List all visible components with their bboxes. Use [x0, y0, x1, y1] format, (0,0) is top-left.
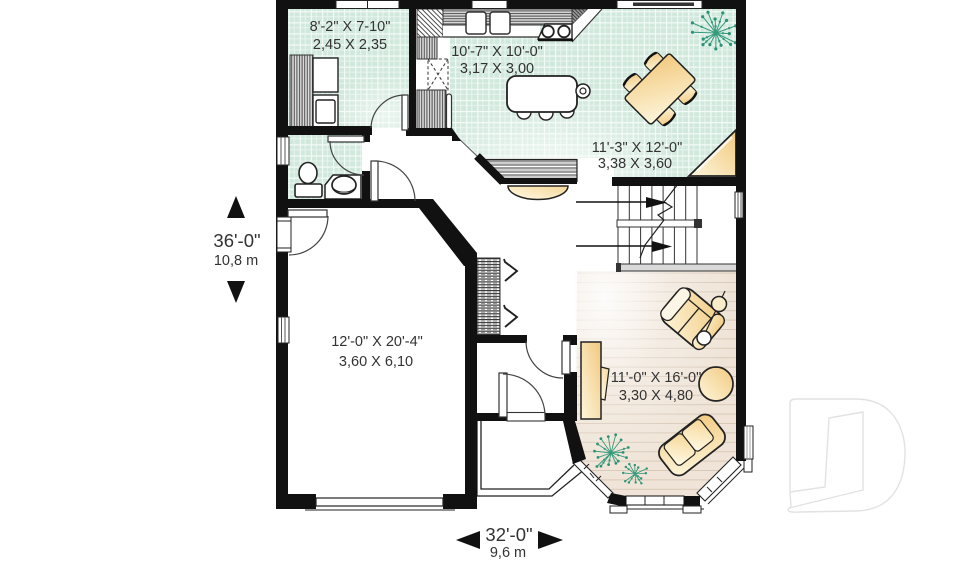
svg-text:3,60 X 6,10: 3,60 X 6,10 [339, 354, 413, 370]
svg-text:3,30 X 4,80: 3,30 X 4,80 [619, 388, 693, 404]
svg-text:3,17 X 3,00: 3,17 X 3,00 [460, 61, 534, 77]
svg-text:2,45 X 2,35: 2,45 X 2,35 [313, 37, 387, 53]
svg-text:10,8 m: 10,8 m [214, 253, 258, 269]
svg-text:10'-7" X 10'-0": 10'-7" X 10'-0" [451, 44, 543, 60]
svg-text:32'-0": 32'-0" [485, 524, 532, 545]
svg-text:8'-2" X 7-10": 8'-2" X 7-10" [310, 19, 391, 35]
svg-text:9,6 m: 9,6 m [490, 545, 526, 561]
svg-text:12'-0" X 20'-4": 12'-0" X 20'-4" [331, 334, 423, 350]
svg-text:3,38 X 3,60: 3,38 X 3,60 [598, 156, 672, 172]
svg-text:11'-3" X 12'-0": 11'-3" X 12'-0" [592, 140, 683, 156]
svg-text:36'-0": 36'-0" [213, 230, 260, 251]
svg-text:11'-0" X 16'-0": 11'-0" X 16'-0" [611, 370, 702, 386]
